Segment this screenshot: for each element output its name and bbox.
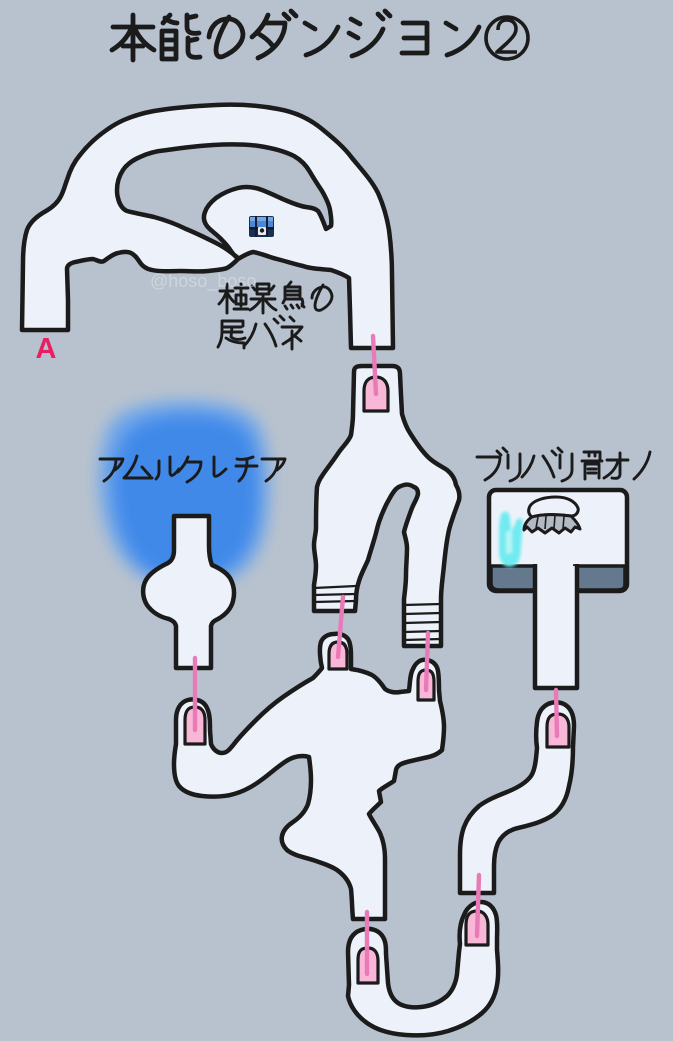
svg-text:A: A xyxy=(36,333,57,365)
svg-text:@hoso_boso: @hoso_boso xyxy=(150,271,256,292)
